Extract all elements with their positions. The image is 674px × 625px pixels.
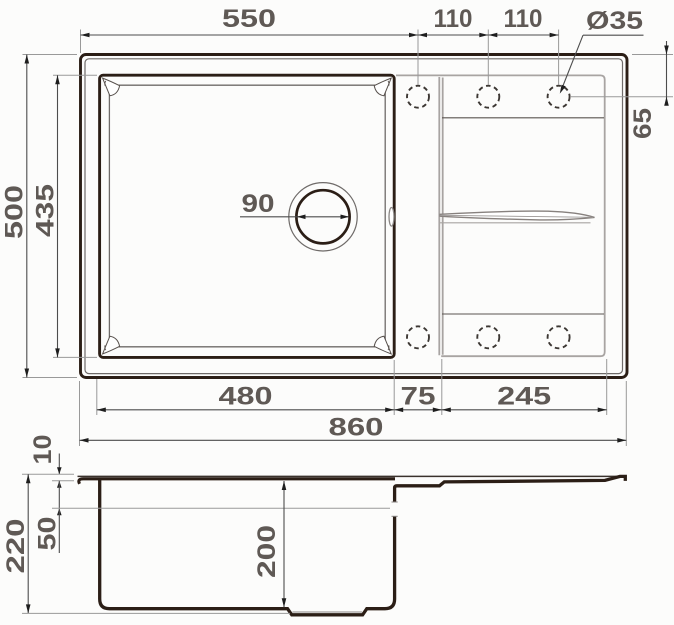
svg-text:200: 200: [253, 525, 281, 578]
svg-text:245: 245: [497, 383, 551, 411]
svg-text:50: 50: [34, 517, 62, 551]
svg-text:Ø35: Ø35: [586, 7, 643, 35]
svg-text:500: 500: [1, 185, 29, 239]
svg-text:220: 220: [2, 519, 30, 574]
svg-text:550: 550: [222, 5, 276, 33]
svg-text:90: 90: [242, 190, 275, 218]
svg-text:480: 480: [219, 383, 273, 411]
svg-text:75: 75: [401, 383, 436, 411]
svg-text:110: 110: [434, 5, 473, 33]
svg-text:860: 860: [329, 414, 384, 442]
svg-text:110: 110: [504, 5, 543, 33]
svg-text:65: 65: [629, 108, 657, 139]
svg-text:435: 435: [32, 184, 60, 237]
svg-text:10: 10: [29, 435, 57, 465]
